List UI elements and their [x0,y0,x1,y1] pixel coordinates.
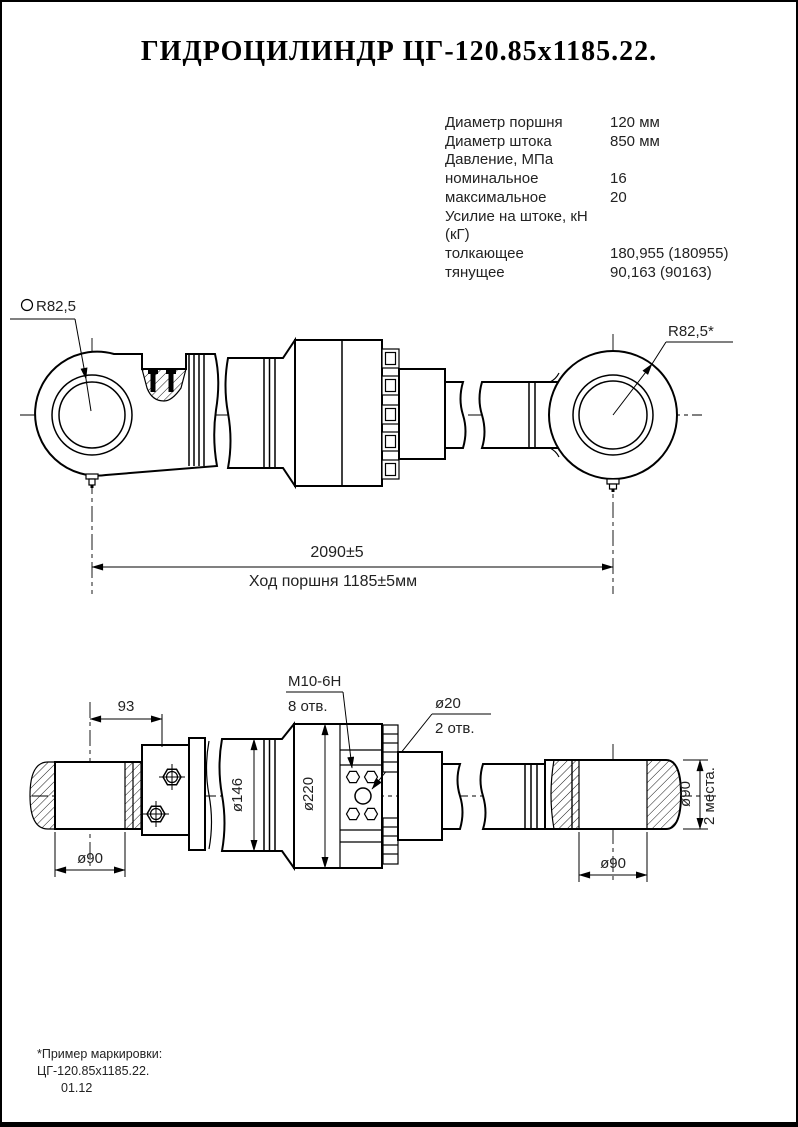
rod-segment-1 [442,764,463,829]
rod-flare [550,373,559,382]
gland-block [399,369,445,459]
rod-segment-2 [480,382,559,448]
offset-dimension: 93 [90,698,162,747]
body-outline [295,340,382,486]
places-note: 2 места. [701,767,718,825]
bushing-hatch [572,760,579,829]
overall-length-value: 2090±5 [310,544,363,561]
grease-fitting-right [607,479,619,492]
port-holes-label: 2 отв. [435,720,475,737]
pin-end-section-hatch [30,762,55,829]
side-view: R82,5 R82,5* 2090±5 Ход поршня 1185±5мм [10,298,733,594]
bolt-head [382,405,399,424]
pin-hatch-right [647,760,681,829]
step-block [398,752,442,840]
right-pin [545,760,681,829]
left-pin-dia-dimension: ø90 [55,832,125,877]
footnote-line: *Пример маркировки: [37,1046,162,1063]
marking-footnote: *Пример маркировки: ЦГ-120.85х1185.22. 0… [37,1046,162,1097]
sphere-symbol-icon [22,300,33,311]
body-top-view: ø220 [294,724,382,868]
overall-length-dimension: 2090±5 Ход поршня 1185±5мм [92,544,613,590]
offset-value: 93 [118,698,135,715]
piston-rod [445,373,559,457]
top-view: ø146 ø220 [30,673,718,882]
bolt-head [382,349,399,368]
break-line [207,741,212,849]
radius-label: R82,5* [668,323,714,340]
flange [189,738,205,850]
rod-flare [550,448,559,457]
tube-dia-label: ø146 [229,778,246,812]
tube-outline [226,340,296,486]
eye-bracket [142,738,212,850]
drawing-sheet: ГИДРОЦИЛИНДР ЦГ-120.85х1185.22. Диаметр … [0,0,798,1127]
bolt-head [382,432,399,451]
footnote-line: ЦГ-120.85х1185.22. [37,1063,162,1080]
bracket-outline [142,745,189,835]
leader-line [652,342,666,364]
rod-segment-2 [481,764,546,829]
pin-hatch-left [551,760,572,829]
left-rod-eye [35,352,218,488]
pin-dia-value: ø90 [600,855,626,872]
thread-holes-label: 8 отв. [288,698,328,715]
cylinder-tube [226,340,296,486]
right-side-dia-dimension: ø90 2 места. [677,760,718,829]
port-dia-label: ø20 [435,695,461,712]
right-rod-eye [549,351,677,492]
piston-stroke-label: Ход поршня 1185±5мм [249,573,417,590]
grease-fitting-left [86,474,98,488]
side-dia-value: ø90 [677,781,694,807]
bolt-head [382,460,399,479]
cylinder-body [295,340,382,486]
left-eye-outline [35,352,218,476]
gland-bolts [382,349,399,479]
thread-spec-label: М10-6Н [288,673,341,690]
cylinder-drawing: R82,5 R82,5* 2090±5 Ход поршня 1185±5мм [2,2,798,1127]
tube-top-view: ø146 [220,724,295,868]
bolt-stacks [383,725,398,864]
rod-segment-1 [445,382,466,448]
body-dia-label: ø220 [300,777,317,811]
footnote-line: 01.12 [37,1080,162,1097]
sphere-radius-label: R82,5 [36,298,76,315]
pin-dia-value: ø90 [77,850,103,867]
bolt-head [382,376,399,395]
left-pin [30,762,142,829]
rod-top-view [442,764,545,829]
